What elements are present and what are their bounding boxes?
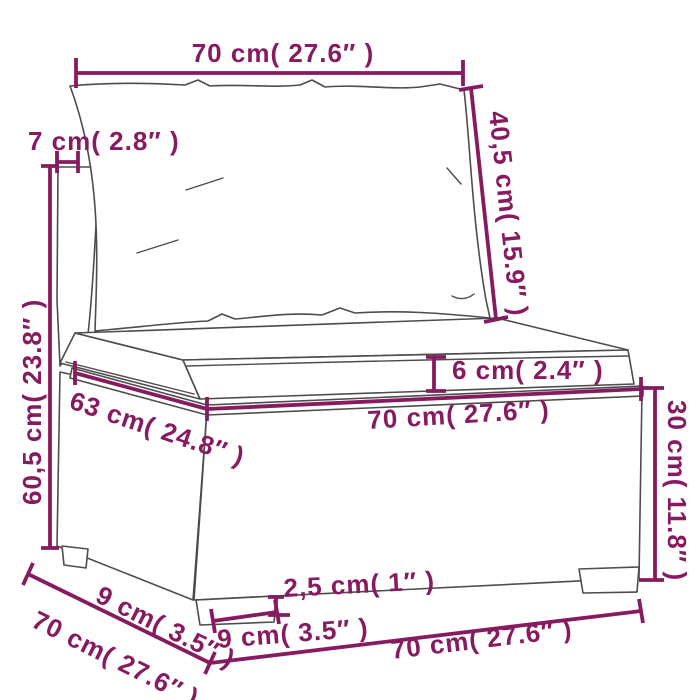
dimension-label: 30 cm( 11.8″ ) xyxy=(662,400,692,581)
dim-base-height: 30 cm( 11.8″ ) xyxy=(639,388,692,581)
dimension-label: 7 cm( 2.8″ ) xyxy=(28,126,180,156)
leg-front-right xyxy=(579,567,639,593)
leg-back-left xyxy=(62,546,88,568)
dim-total-height: 60,5 cm( 23.8″ ) xyxy=(17,166,59,548)
dimension-label: 70 cm( 27.6″ ) xyxy=(192,38,375,68)
dim-leg-height: 2,5 cm( 1″ ) xyxy=(268,565,436,615)
dim-top-width: 70 cm( 27.6″ ) xyxy=(76,38,463,88)
sofa-line-art xyxy=(57,80,643,625)
dimension-label: 70 cm( 27.6″ ) xyxy=(389,613,574,665)
dimension-line xyxy=(639,388,664,580)
dimension-label: 6 cm( 2.4″ ) xyxy=(452,355,604,385)
dimension-label: 60,5 cm( 23.8″ ) xyxy=(17,299,47,505)
back-cushion xyxy=(70,80,490,331)
sofa-dimension-diagram: 70 cm( 27.6″ ) 7 cm( 2.8″ ) 40,5 cm( 15.… xyxy=(0,0,700,700)
dimension-diagram-page: 70 cm( 27.6″ ) 7 cm( 2.8″ ) 40,5 cm( 15.… xyxy=(0,0,700,700)
